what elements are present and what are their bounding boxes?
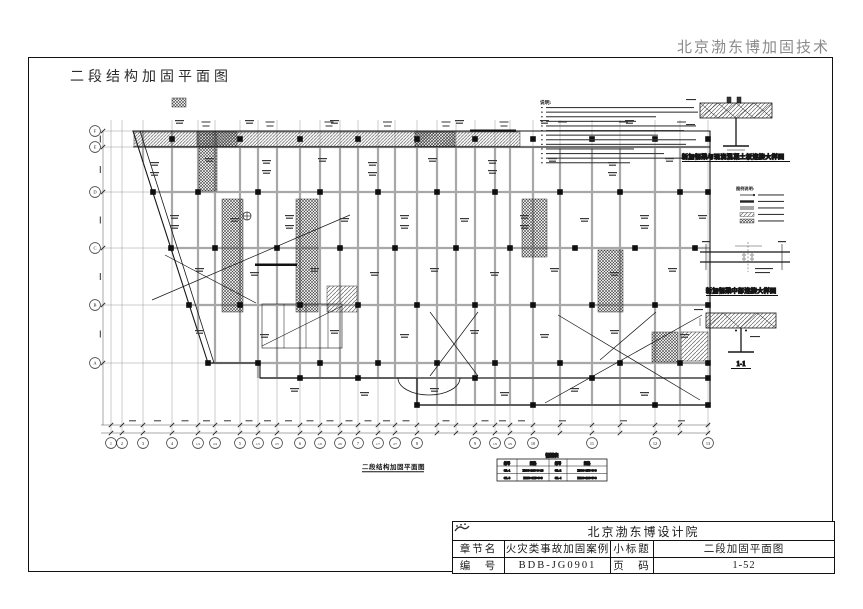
title-block-row: 编 号 BDB-JG0901 页 码 1-52 bbox=[453, 557, 834, 574]
subtitle-label: 小标题 bbox=[610, 541, 653, 557]
steel-table-title: 钢梁表 bbox=[546, 452, 560, 459]
drawing-sheet: { "header": { "company": "北京渤东博加固技术" }, … bbox=[0, 0, 863, 609]
table-cell: GL-1 bbox=[504, 468, 511, 472]
page-value: 1-52 bbox=[653, 558, 834, 574]
svg-text:1/4: 1/4 bbox=[196, 442, 200, 446]
institute-name: 北京渤东博设计院 bbox=[587, 523, 699, 540]
table-cell: GL-3 bbox=[504, 476, 511, 480]
institute-logo-icon bbox=[453, 522, 471, 534]
table-cell: GL-2 bbox=[555, 468, 562, 472]
svg-text:8: 8 bbox=[416, 441, 418, 446]
svg-text:1: 1 bbox=[110, 441, 112, 446]
svg-text:B: B bbox=[93, 303, 96, 308]
chapter-value: 火灾类事故加固案例 bbox=[504, 541, 610, 557]
plan-caption: 二段结构加固平面图 bbox=[362, 462, 425, 471]
table-cell: H200×100×5×8 bbox=[577, 476, 597, 480]
hatch-regions bbox=[134, 98, 708, 362]
svg-text:2/7: 2/7 bbox=[393, 442, 397, 446]
svg-text:1/7: 1/7 bbox=[376, 442, 380, 446]
svg-text:1/9: 1/9 bbox=[493, 442, 497, 446]
plan-drawing: 12341/42/451/52/561/62/671/72/7891/92/91… bbox=[0, 0, 863, 609]
svg-text:10: 10 bbox=[531, 441, 535, 446]
table-cell: H400×200×8×13 bbox=[523, 468, 544, 472]
svg-text:5: 5 bbox=[239, 441, 241, 446]
table-header: 规格 bbox=[530, 460, 537, 465]
chapter-label: 章节名 bbox=[453, 541, 504, 557]
svg-text:13: 13 bbox=[706, 441, 710, 446]
svg-text:C: C bbox=[93, 246, 96, 251]
detail1-caption: 新加钢梁与现浇混凝土板连接大样图 bbox=[682, 153, 784, 161]
svg-text:1/6: 1/6 bbox=[318, 442, 322, 446]
steel-table: 钢梁表 编号 规格 编号 规格 GL-1 H400×200×8×13 GL-2 … bbox=[497, 452, 607, 481]
svg-text:E: E bbox=[94, 145, 97, 150]
svg-text:2: 2 bbox=[121, 441, 123, 446]
detail2-caption: 新加钢梁中部连接大样图 bbox=[706, 287, 776, 295]
number-label: 编 号 bbox=[453, 558, 504, 574]
detail-slab-connection: 新加钢梁与现浇混凝土板连接大样图 bbox=[682, 97, 790, 162]
svg-text:3: 3 bbox=[142, 441, 144, 446]
table-cell: H300×150×6×9 bbox=[577, 468, 597, 472]
table-header: 编号 bbox=[555, 460, 561, 465]
detail-mid-connection: 新加钢梁中部连接大样图 bbox=[700, 241, 790, 296]
notes-heading: 说明: bbox=[540, 99, 552, 106]
svg-text:12: 12 bbox=[653, 441, 657, 446]
svg-text:2/9: 2/9 bbox=[508, 442, 512, 446]
section-caption: 1-1 bbox=[736, 360, 746, 368]
table-header: 编号 bbox=[504, 460, 510, 465]
table-cell: H250×125×6×9 bbox=[523, 476, 543, 480]
institute-row: 北京渤东博设计院 bbox=[453, 522, 834, 541]
svg-text:2/6: 2/6 bbox=[338, 442, 342, 446]
svg-text:1/5: 1/5 bbox=[256, 442, 260, 446]
svg-text:2/4: 2/4 bbox=[213, 442, 217, 446]
number-value: BDB-JG0901 bbox=[504, 558, 610, 574]
svg-text:2/5: 2/5 bbox=[275, 442, 279, 446]
svg-text:9: 9 bbox=[474, 441, 476, 446]
subtitle-value: 二段加固平面图 bbox=[653, 541, 834, 557]
legend-heading: 图例说明: bbox=[736, 185, 755, 192]
legend: 图例说明: bbox=[736, 185, 784, 223]
title-block-row: 章节名 火灾类事故加固案例 小标题 二段加固平面图 bbox=[453, 541, 834, 557]
svg-text:11: 11 bbox=[590, 441, 594, 446]
title-block: 北京渤东博设计院 章节名 火灾类事故加固案例 小标题 二段加固平面图 编 号 B… bbox=[452, 521, 835, 574]
page-label: 页 码 bbox=[610, 558, 653, 574]
table-header: 规格 bbox=[584, 460, 591, 465]
plan-caption-group: 二段结构加固平面图 bbox=[362, 462, 425, 472]
table-cell: GL-4 bbox=[555, 476, 562, 480]
